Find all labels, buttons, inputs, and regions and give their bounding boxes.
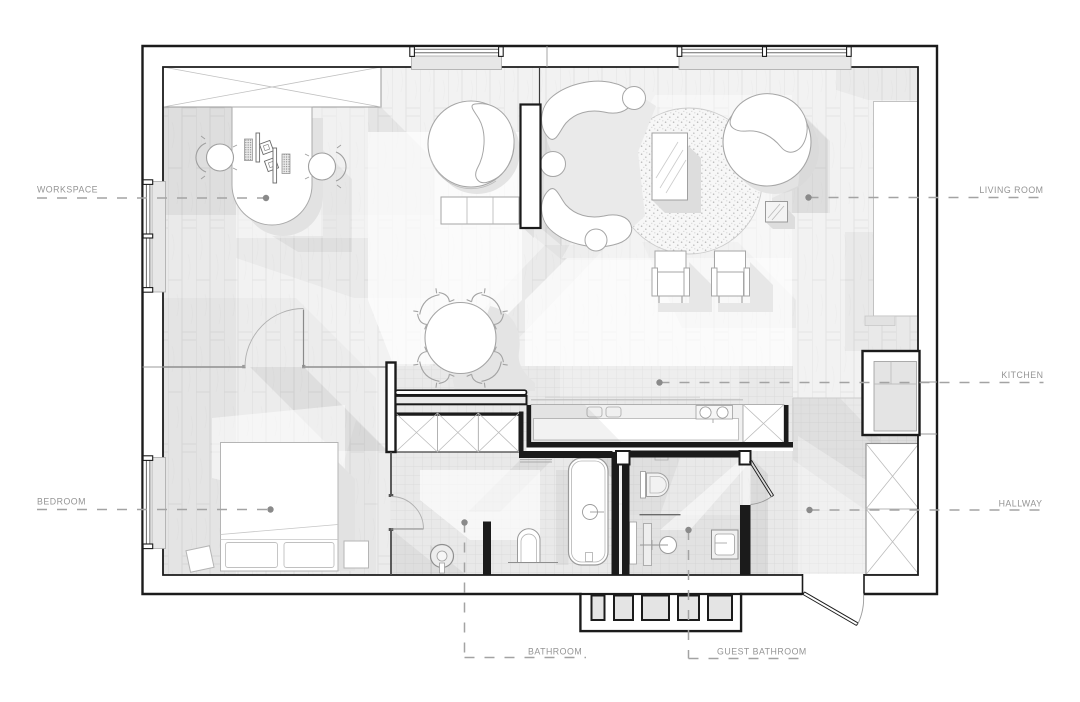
svg-text:WORKSPACE: WORKSPACE [37,185,98,195]
svg-text:LIVING ROOM: LIVING ROOM [979,185,1043,195]
svg-text:BEDROOM: BEDROOM [37,497,86,507]
svg-text:BATHROOM: BATHROOM [528,647,582,657]
svg-text:HALLWAY: HALLWAY [999,499,1043,509]
svg-text:GUEST BATHROOM: GUEST BATHROOM [717,647,807,657]
svg-text:KITCHEN: KITCHEN [1001,370,1043,380]
